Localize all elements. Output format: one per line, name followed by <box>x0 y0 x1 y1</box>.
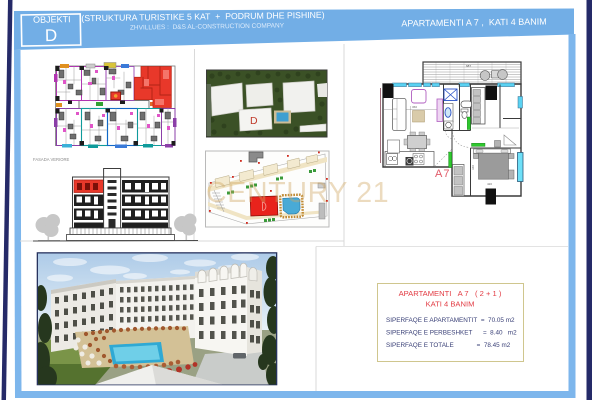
svg-text:SIPERFAQE E PERBESHKET =: SIPERFAQE E PERBESHKET = 8.40 m2 <box>386 330 517 337</box>
svg-text:SIPERFAQE E TOTALE: SIPERFAQE E TOTALE = 78.45 m2 <box>386 342 511 349</box>
svg-text:KATI 4 BANIM: KATI 4 BANIM <box>426 300 475 309</box>
svg-text:687: 687 <box>466 64 471 68</box>
svg-text:APARTAMENTI A 7 , KATI 4 BANI: APARTAMENTI A 7 , KATI 4 BANIM <box>401 16 547 28</box>
svg-text:340: 340 <box>471 165 475 170</box>
svg-text:CENTURY 21: CENTURY 21 <box>206 177 389 209</box>
svg-text:FASADA VERIORE: FASADA VERIORE <box>33 157 70 162</box>
svg-text:360: 360 <box>412 105 417 109</box>
svg-text:OBJEKTI: OBJEKTI <box>33 14 71 25</box>
svg-text:A7: A7 <box>435 168 450 180</box>
svg-text:D: D <box>45 26 58 45</box>
svg-text:SIPERFAQE E APARTAMENTIT = 7: SIPERFAQE E APARTAMENTIT = 70.05 m2 <box>386 317 515 324</box>
svg-text:APARTAMENTI A 7 ( 2 + 1 ): APARTAMENTI A 7 ( 2 + 1 ) <box>399 289 502 298</box>
svg-text:420: 420 <box>487 182 492 186</box>
svg-text:D: D <box>250 115 258 127</box>
